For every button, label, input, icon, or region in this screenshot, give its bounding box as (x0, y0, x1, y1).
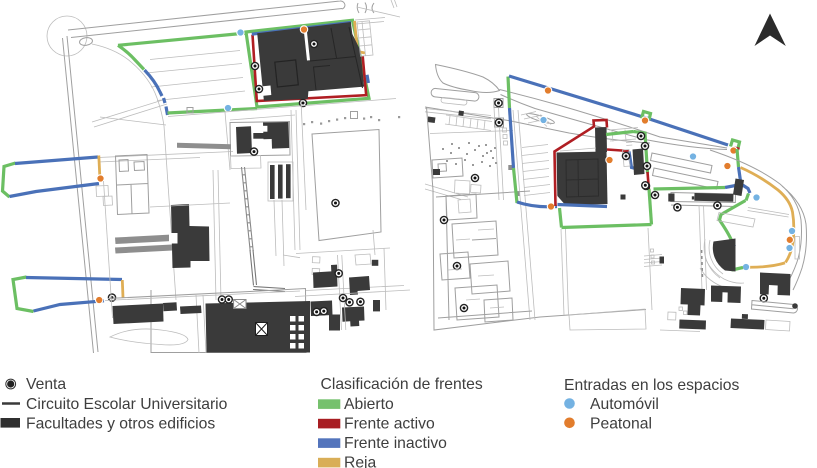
svg-text:Automóvil: Automóvil (590, 396, 659, 413)
svg-text:Entradas en los espacios: Entradas en los espacios (564, 377, 739, 394)
svg-text:Frente activo: Frente activo (344, 415, 435, 432)
svg-text:Peatonal: Peatonal (590, 415, 652, 432)
svg-text:Venta: Venta (26, 376, 66, 393)
svg-text:Reja: Reja (344, 454, 377, 468)
svg-text:Abierto: Abierto (344, 396, 394, 413)
svg-text:Clasificación de frentes: Clasificación de frentes (321, 376, 483, 393)
svg-text:Frente inactivo: Frente inactivo (344, 435, 447, 452)
svg-text:Facultades y otros edificios: Facultades y otros edificios (26, 415, 215, 432)
svg-text:Circuito Escolar Universitario: Circuito Escolar Universitario (26, 396, 228, 413)
